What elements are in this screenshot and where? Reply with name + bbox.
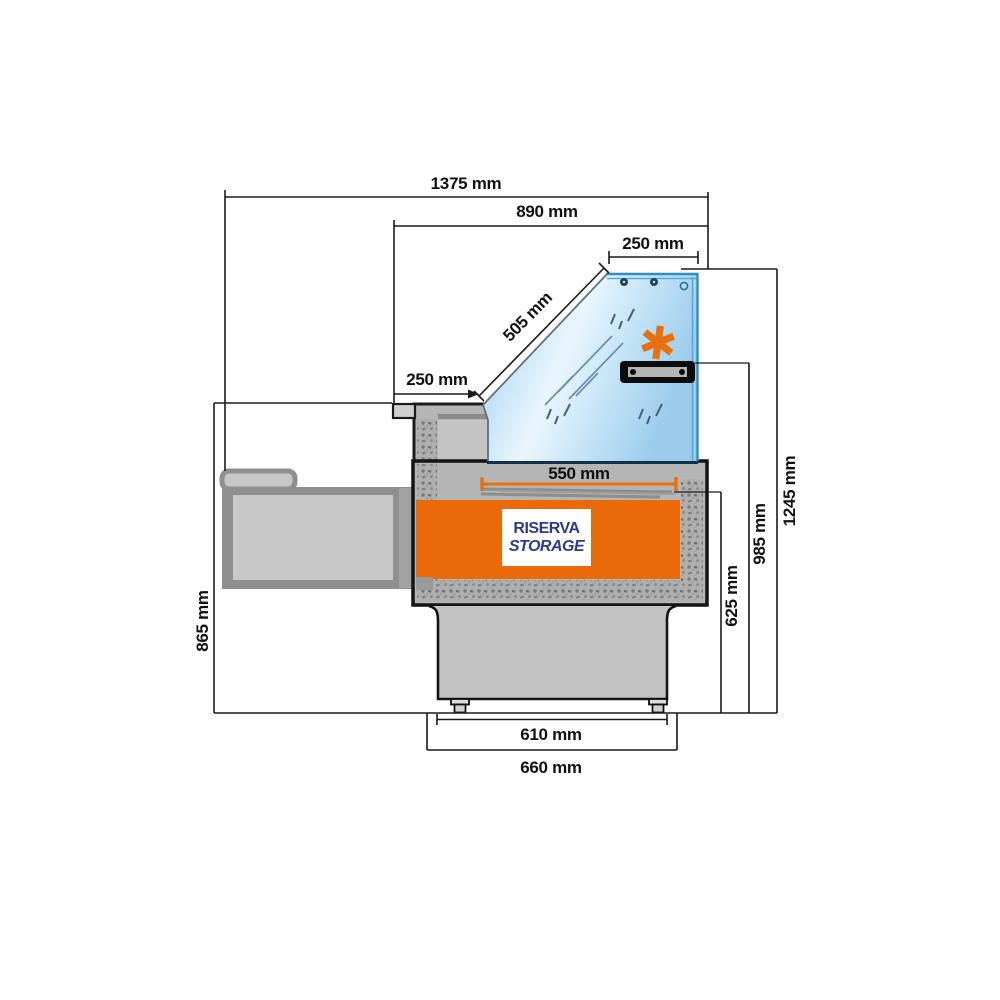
dim-label-reserve-height: 625 mm [722, 565, 742, 627]
drawing-svg [0, 0, 1000, 1000]
dim-label-front-ledge: 250 mm [406, 370, 468, 390]
counter-block [393, 404, 491, 464]
storage-label-line2: STORAGE [509, 538, 584, 556]
condensing-unit-joint [399, 488, 413, 588]
dim-label-feet-span: 610 mm [520, 725, 582, 745]
adjustable-foot-left [451, 699, 469, 713]
insulation-bottom [417, 580, 703, 601]
dim-label-glass-top-width: 250 mm [622, 234, 684, 254]
display-deck [481, 489, 675, 497]
technical-drawing-canvas: 1375 mm 890 mm 250 mm 505 mm 250 mm 550 … [0, 0, 1000, 1000]
storage-label-line1: RISERVA [513, 520, 579, 538]
dim-label-upper-depth: 890 mm [516, 202, 578, 222]
footnote-asterisk-icon: ✱ [636, 318, 681, 369]
condensing-unit-panel [233, 495, 393, 580]
dim-label-overall-height: 1245 mm [780, 456, 800, 527]
glass-screw-highlight [653, 281, 655, 283]
dim-label-total-depth: 1375 mm [431, 174, 502, 194]
dim-label-lamp-height: 985 mm [750, 503, 770, 565]
glass-screw-highlight [623, 281, 625, 283]
counter-step [393, 404, 415, 418]
storage-label-card: RISERVA STORAGE [502, 509, 591, 566]
counter-inner-panel [438, 420, 488, 461]
arrowhead [468, 390, 479, 399]
dim-label-worktop-height: 865 mm [193, 590, 213, 652]
counter-rail [438, 414, 487, 419]
base-pedestal [429, 606, 676, 713]
insulation-left-upper [417, 419, 437, 464]
condensing-unit-handle [222, 471, 295, 489]
dim-label-deck-depth: 550 mm [548, 464, 610, 484]
adjustable-foot-right [649, 699, 667, 713]
storage-corner-block [416, 577, 433, 590]
dim-label-base-depth: 660 mm [520, 758, 582, 778]
condensing-unit [222, 471, 413, 589]
